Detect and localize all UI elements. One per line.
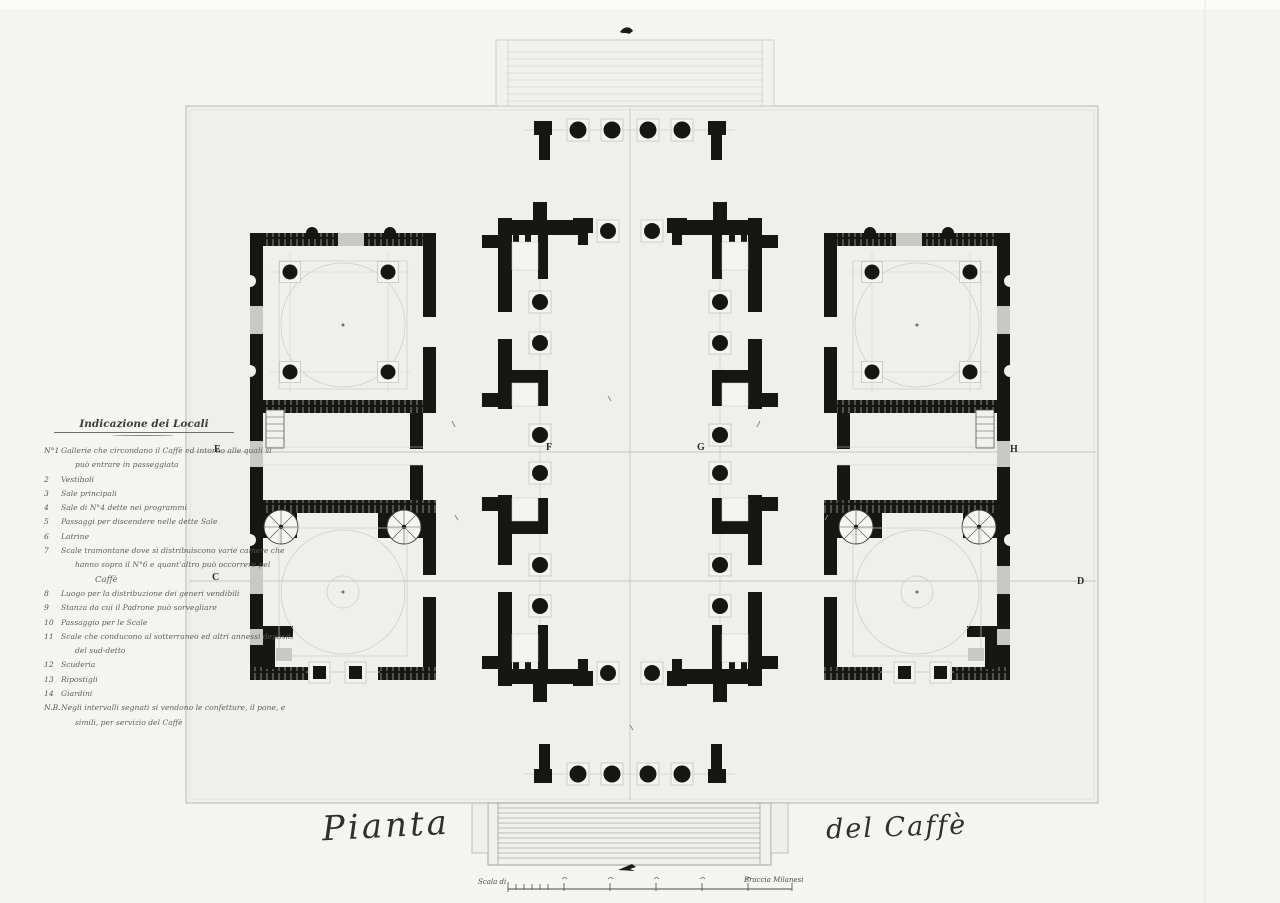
legend-row: 7Scale tramontane dove si distribuiscono… xyxy=(44,546,254,560)
legend-row: 13Ripostigli xyxy=(44,675,254,689)
legend-title: Indicazione dei Locali xyxy=(54,418,234,433)
drawing-title-del-caffe: del Caffè xyxy=(826,810,968,846)
legend-row-number: 9 xyxy=(44,603,61,617)
legend-row: può entrare in passeggiata xyxy=(44,460,254,474)
legend-row: 14Giardini xyxy=(44,689,254,703)
legend-row-text: può entrare in passeggiata xyxy=(61,460,179,474)
legend-row-number: 5 xyxy=(44,517,61,531)
legend-row: N.B.Negli intervalli segnati si vendono … xyxy=(44,703,254,717)
axis-letter-G: G xyxy=(697,442,705,453)
legend-row: 11Scale che conducono al sotterraneo ed … xyxy=(44,632,254,646)
legend-row: 4Sale di N°4 dette nei programmi xyxy=(44,503,254,517)
legend-row: simili, per servizio del Caffè xyxy=(44,718,254,732)
axis-letter-mark-top xyxy=(620,27,633,34)
legend-row-text: Latrine xyxy=(61,532,89,546)
legend-row: 9Stanza da cui il Padrone può sorvegliar… xyxy=(44,603,254,617)
legend-row: 8Luogo per la distribuzione dei generi v… xyxy=(44,589,254,603)
legend-row-text: Giardini xyxy=(61,689,92,703)
legend-row-number: 12 xyxy=(44,660,61,674)
legend-row-text: Passaggi per discendere nelle dette Sale xyxy=(61,517,217,531)
drawing-sheet xyxy=(186,0,1205,903)
legend-row: 12Scuderia xyxy=(44,660,254,674)
floor-plan-photograph: E F G H C D Pianta del Caffè Scala di Br… xyxy=(0,0,1280,903)
legend-row-text: Ripostigli xyxy=(61,675,98,689)
legend-row-text: simili, per servizio del Caffè xyxy=(61,718,183,732)
legend-row-text: Passaggio per le Scale xyxy=(61,618,147,632)
legend-row-text: Scale che conducono al sotterraneo ed al… xyxy=(61,632,293,646)
legend-row-text: Gallerie che circondano il Caffè ed into… xyxy=(61,446,272,460)
legend-row-number: 6 xyxy=(44,532,61,546)
legend-row-number xyxy=(44,460,61,474)
legend-row-text: hanno sopra il N°6 e quant'altro può occ… xyxy=(61,560,270,574)
legend-row: 6Latrine xyxy=(44,532,254,546)
legend-row-text: Luogo per la distribuzione dei generi ve… xyxy=(61,589,240,603)
legend-row-number: 11 xyxy=(44,632,61,646)
legend-row-number: 4 xyxy=(44,503,61,517)
legend-row-number: 3 xyxy=(44,489,61,503)
legend-row-text: del sud-detto xyxy=(61,646,125,660)
legend-row-number xyxy=(44,575,61,589)
legend-row-text: Caffè xyxy=(61,575,118,589)
legend-row-text: Sale di N°4 dette nei programmi xyxy=(61,503,187,517)
legend-row-number: 7 xyxy=(44,546,61,560)
legend-row-number: 10 xyxy=(44,618,61,632)
legend-row-text: Vestiboli xyxy=(61,475,94,489)
legend-row: 3Sale principali xyxy=(44,489,254,503)
legend-row-number: 13 xyxy=(44,675,61,689)
axis-letter-D: D xyxy=(1077,576,1084,587)
top-entrance-stairs xyxy=(496,27,774,106)
legend-row-text: Scuderia xyxy=(61,660,95,674)
legend-row-text: Stanza da cui il Padrone può sorvegliare xyxy=(61,603,217,617)
legend-row-number: N.B. xyxy=(44,703,61,717)
legend-row: 10Passaggio per le Scale xyxy=(44,618,254,632)
legend-row-number xyxy=(44,646,61,660)
legend-row: 2Vestiboli xyxy=(44,475,254,489)
legend-row-number: 8 xyxy=(44,589,61,603)
legend-rows: N°1Gallerie che circondano il Caffè ed i… xyxy=(44,446,254,732)
axis-letter-F: F xyxy=(546,442,552,453)
legend-row-number: N°1 xyxy=(44,446,61,460)
drawing-title-pianta: Pianta xyxy=(321,803,451,850)
legend-row-text: Sale principali xyxy=(61,489,117,503)
legend-row-text: Scale tramontane dove si distribuiscono … xyxy=(61,546,284,560)
legend: Indicazione dei Locali N°1Gallerie che c… xyxy=(44,418,254,732)
scale-label-right: Braccia Milanesi xyxy=(744,876,803,884)
bottom-grand-staircase xyxy=(472,803,788,865)
legend-row-number xyxy=(44,718,61,732)
legend-row-number xyxy=(44,560,61,574)
legend-row-number: 2 xyxy=(44,475,61,489)
legend-row: Caffè xyxy=(44,575,254,589)
legend-row: 5Passaggi per discendere nelle dette Sal… xyxy=(44,517,254,531)
legend-row-text: Negli intervalli segnati si vendono le c… xyxy=(61,703,285,717)
legend-row-number: 14 xyxy=(44,689,61,703)
axis-letter-H: H xyxy=(1010,444,1018,455)
scale-label-left: Scala di xyxy=(478,878,506,886)
legend-row: N°1Gallerie che circondano il Caffè ed i… xyxy=(44,446,254,460)
legend-row: hanno sopra il N°6 e quant'altro può occ… xyxy=(44,560,254,574)
legend-row: del sud-detto xyxy=(44,646,254,660)
